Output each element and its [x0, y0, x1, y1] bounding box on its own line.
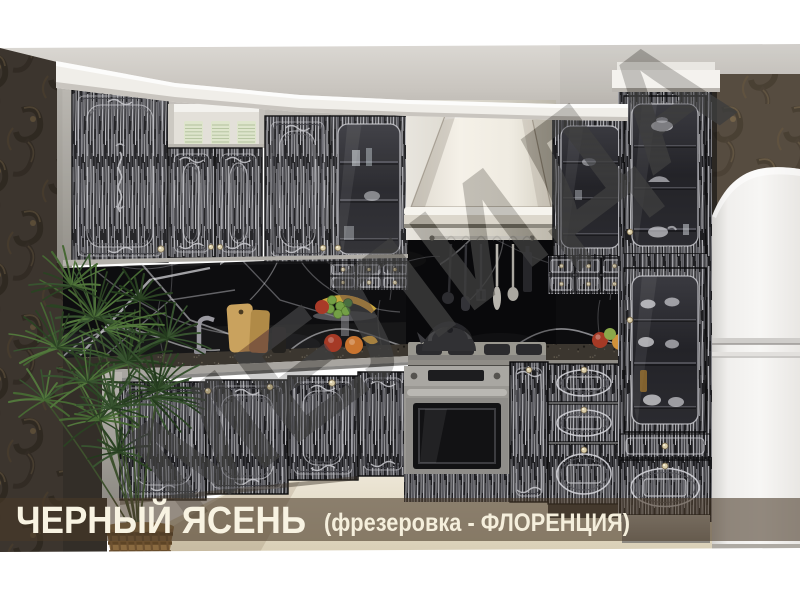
svg-text:ЧЕРНЫЙ ЯСЕНЬ: ЧЕРНЫЙ ЯСЕНЬ — [16, 497, 306, 542]
svg-text:(фрезеровка - ФЛОРЕНЦИЯ): (фрезеровка - ФЛОРЕНЦИЯ) — [324, 509, 630, 537]
